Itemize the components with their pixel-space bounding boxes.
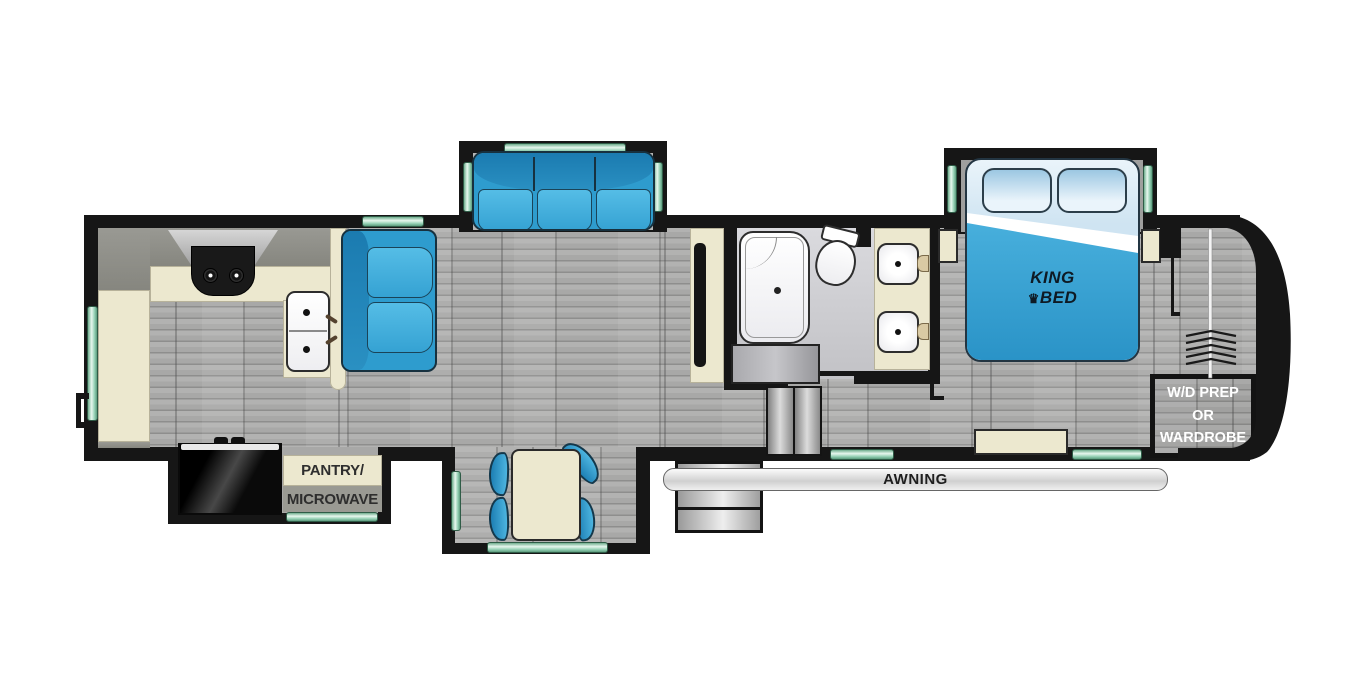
bedroom-dresser	[974, 429, 1068, 455]
window-rear-wall	[87, 306, 98, 421]
theater-sofa	[472, 151, 655, 231]
wd-label-line2: OR	[1192, 405, 1214, 427]
refrigerator	[178, 443, 282, 515]
sofa-seat	[596, 189, 651, 231]
awning-label: AWNING	[883, 471, 948, 488]
bedroom-wall-stub	[1160, 228, 1181, 258]
sink-drain-icon	[895, 261, 901, 267]
nightstand	[1141, 229, 1161, 263]
interior-steps	[766, 386, 822, 456]
sink-divider	[289, 330, 327, 332]
shower	[739, 231, 810, 344]
king-bed: KING ♛BED	[965, 158, 1140, 362]
king-bed-word: BED	[1040, 288, 1077, 307]
nightstand	[938, 229, 958, 263]
dinette-table	[511, 449, 581, 541]
window-bed-slide-left	[947, 165, 957, 213]
king-bed-label: KING ♛BED	[967, 268, 1138, 307]
refrigerator-top-trim	[181, 444, 279, 450]
king-bed-label-line1: KING	[967, 268, 1138, 288]
burner-icon	[203, 268, 218, 283]
awning-bar: AWNING	[663, 468, 1168, 491]
sofa-backrest	[474, 153, 653, 191]
window-bottom-mid	[830, 449, 894, 460]
steps-partition	[930, 326, 934, 400]
kitchen-counter-rear	[98, 290, 150, 442]
steps-partition-foot	[930, 396, 944, 400]
window-bed-slide-right	[1143, 165, 1153, 213]
window-bottom-right	[1072, 449, 1142, 460]
sofa-seat	[478, 189, 533, 231]
window-dinette-left	[451, 471, 461, 531]
sink-drain-icon	[303, 309, 310, 316]
entry-step-tread	[678, 510, 760, 530]
step-tread	[768, 388, 795, 454]
pantry-cabinet: PANTRY/	[283, 455, 382, 486]
loveseat	[341, 229, 437, 372]
dinette-chair	[488, 452, 510, 497]
kitchen-counter-corner	[98, 228, 150, 290]
window-pantry-slide	[286, 512, 378, 522]
wd-label-line3: WARDROBE	[1160, 427, 1246, 449]
sink-drain-icon	[895, 329, 901, 335]
sink-drain-icon	[303, 346, 310, 353]
king-bed-label-line2: ♛BED	[967, 288, 1138, 308]
refrigerator-handle-icon	[214, 437, 228, 444]
tv-icon	[694, 243, 706, 367]
loveseat-backrest	[343, 231, 369, 370]
shower-cabinet	[731, 344, 820, 384]
microwave-label: MICROWAVE	[287, 491, 378, 508]
bed-pillow	[982, 168, 1052, 213]
crown-icon: ♛	[1028, 291, 1040, 306]
wd-prep-label: W/D PREP OR WARDROBE	[1150, 379, 1256, 453]
wd-label-line1: W/D PREP	[1167, 382, 1239, 404]
rear-bracket-prong	[76, 393, 89, 399]
closet-partition-foot	[1171, 312, 1180, 316]
step-tread	[795, 388, 820, 454]
microwave-cabinet: MICROWAVE	[283, 486, 382, 512]
window-dinette-bottom	[487, 542, 608, 553]
vanity-faucet-icon	[917, 323, 929, 340]
closet-partition	[1171, 258, 1174, 316]
pantry-label: PANTRY/	[301, 462, 364, 479]
kitchen-counter-rear-end	[98, 442, 150, 448]
vanity-faucet-icon	[917, 255, 929, 272]
cooktop	[191, 246, 255, 296]
sofa-seat	[537, 189, 592, 231]
rv-floorplan: PANTRY/ MICROWAVE	[0, 0, 1366, 683]
shower-drain-icon	[774, 287, 781, 294]
sofa-section-line	[594, 157, 596, 191]
burner-icon	[229, 268, 244, 283]
sofa-section-line	[533, 157, 535, 191]
bed-pillow	[1057, 168, 1127, 213]
rear-bracket-prong	[76, 422, 89, 428]
loveseat-seat	[367, 247, 433, 298]
refrigerator-handle-icon	[231, 437, 245, 444]
window-kitchen-top	[362, 216, 424, 227]
loveseat-seat	[367, 302, 433, 353]
